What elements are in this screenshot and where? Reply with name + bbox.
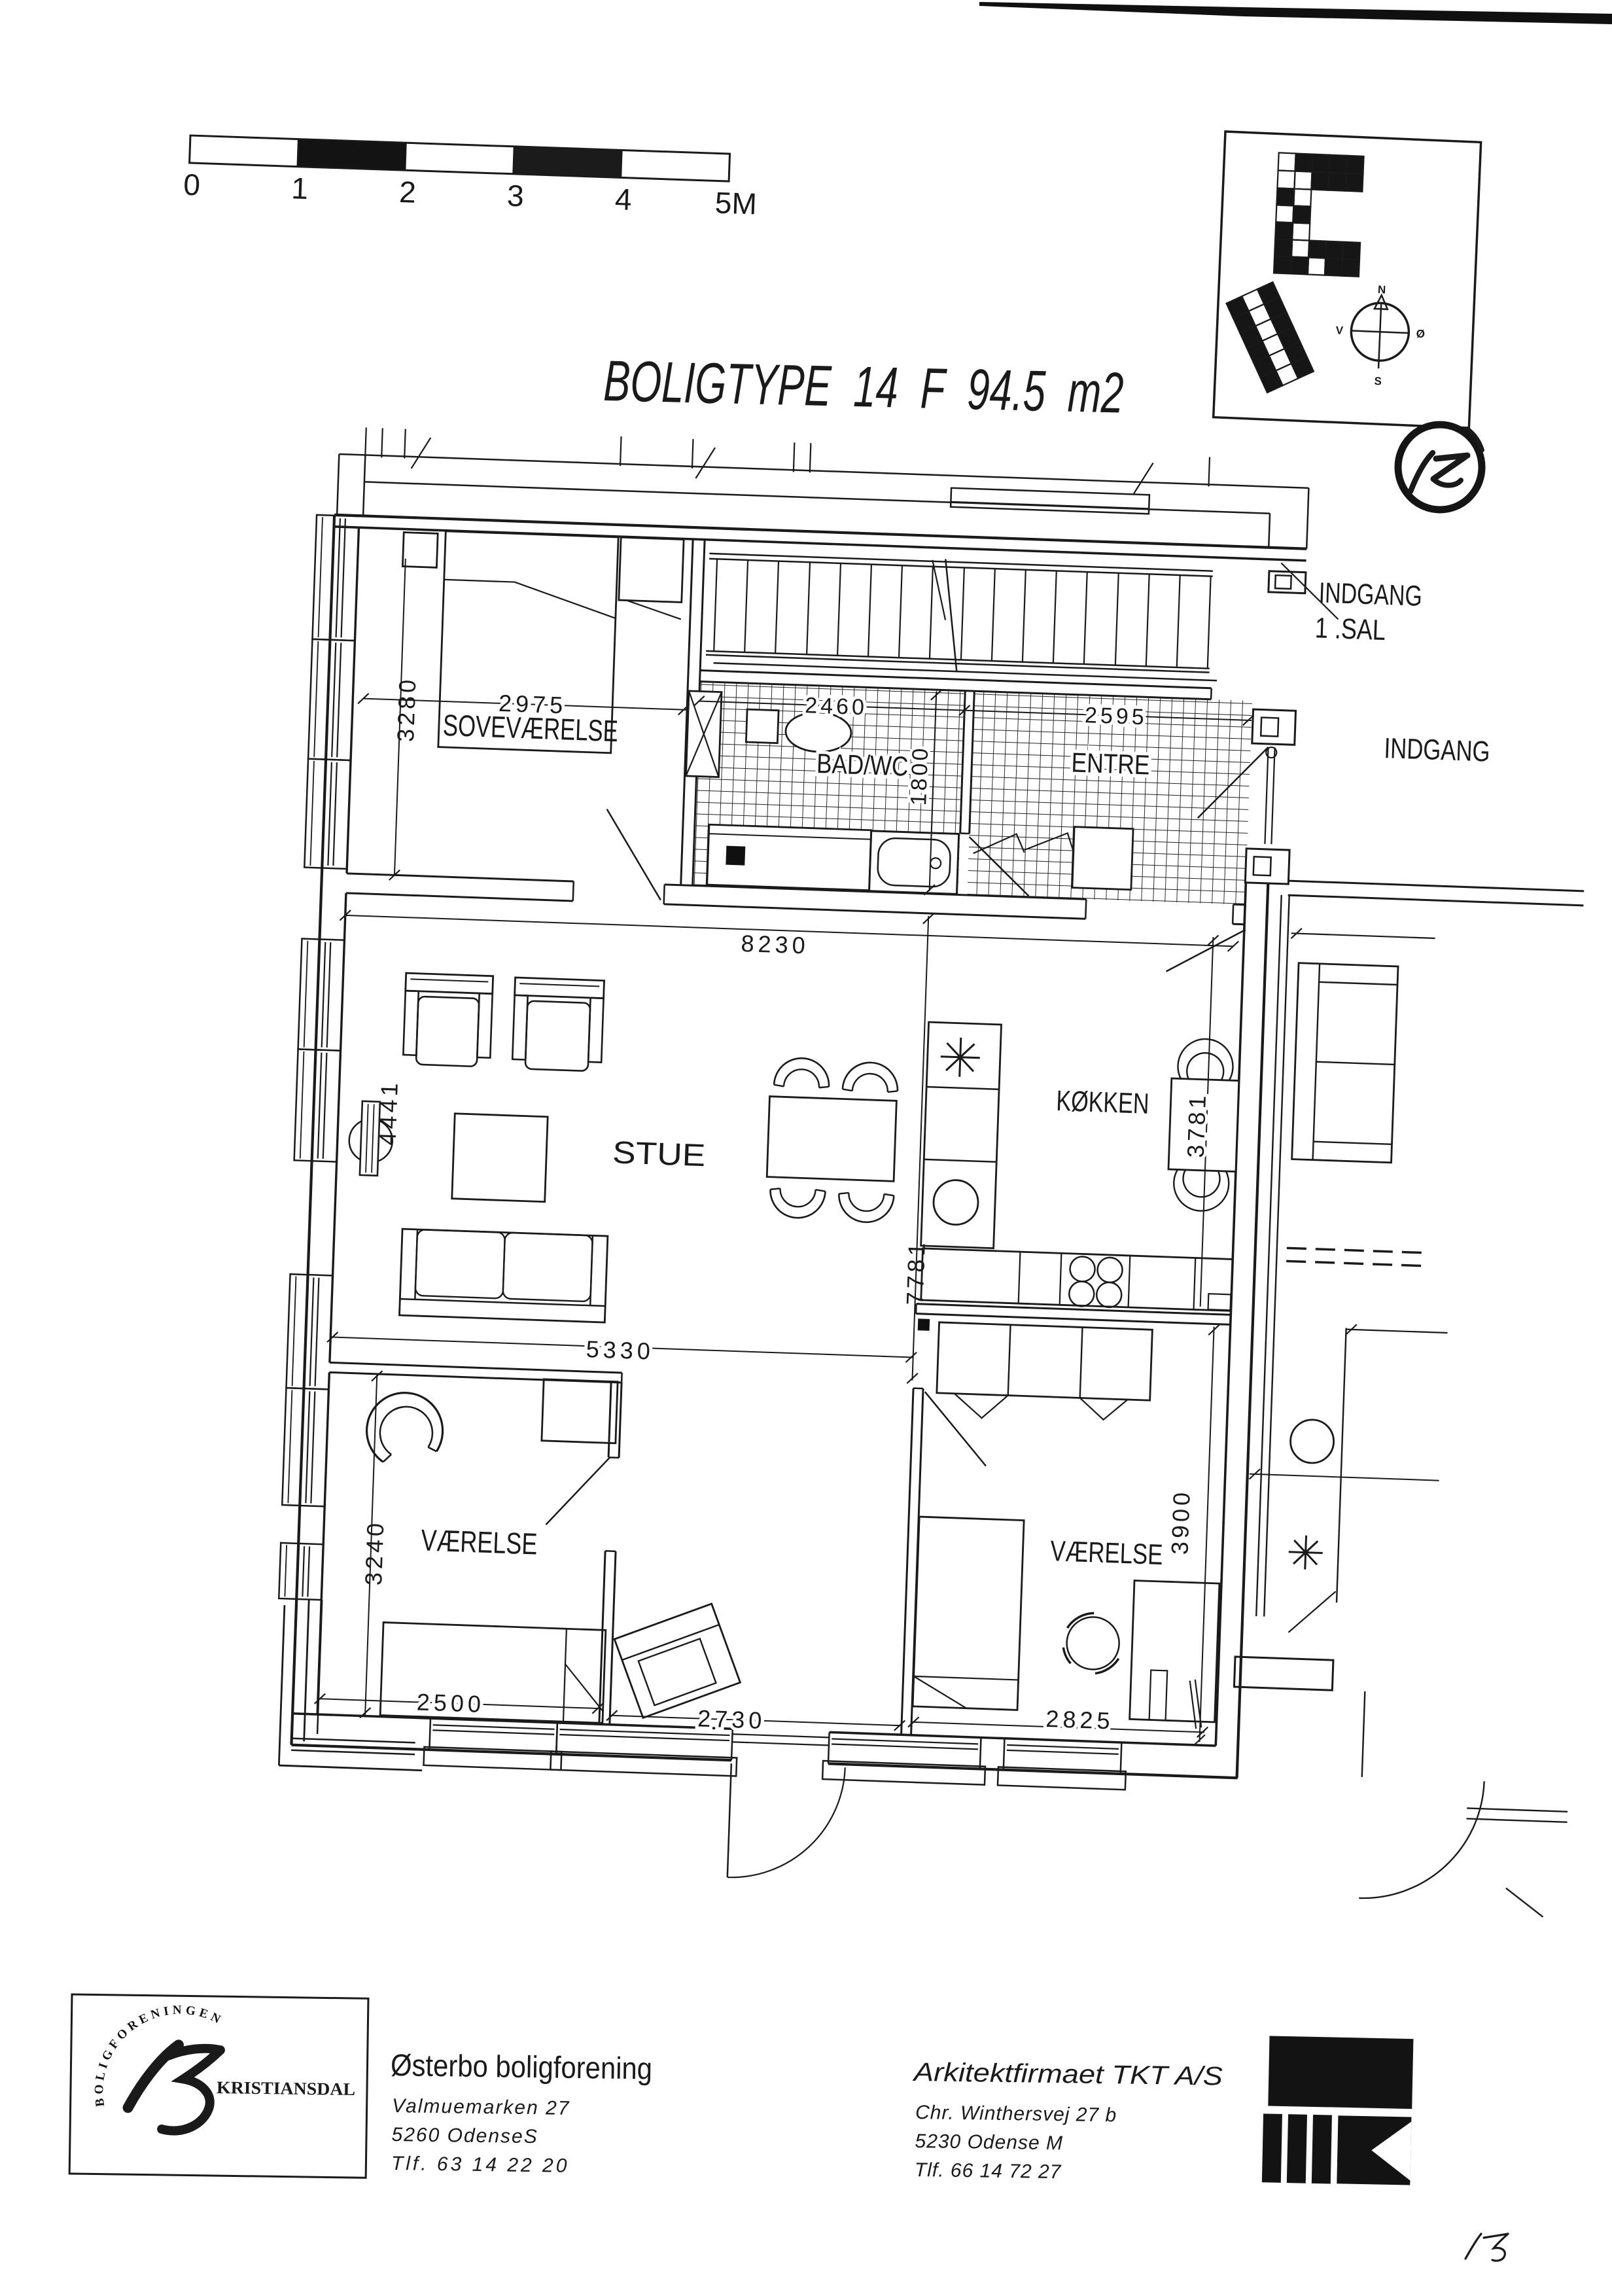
svg-text:5330: 5330 (586, 1335, 654, 1365)
svg-text:1: 1 (290, 171, 308, 205)
svg-text:5M: 5M (714, 185, 758, 221)
svg-text:Østerbo boligforening: Østerbo boligforening (391, 2047, 653, 2086)
svg-text:0: 0 (183, 168, 201, 202)
svg-text:INDGANG: INDGANG (1318, 576, 1423, 612)
svg-text:5230 Odense M: 5230 Odense M (915, 2130, 1063, 2154)
svg-text:2: 2 (398, 175, 416, 209)
svg-text:2825: 2825 (1045, 1705, 1114, 1735)
svg-text:3: 3 (506, 179, 524, 213)
svg-text:S: S (1374, 375, 1382, 387)
svg-text:3900: 3900 (1166, 1489, 1195, 1555)
svg-text:Arkitektfirmaet TKT A/S: Arkitektfirmaet TKT A/S (912, 2058, 1223, 2091)
svg-text:BOLIGTYPE 14 F 94.5 m2: BOLIGTYPE 14 F 94.5 m2 (603, 348, 1124, 425)
svg-text:7781: 7781 (902, 1239, 930, 1305)
svg-text:2975: 2975 (499, 690, 567, 719)
svg-text:Tlf. 66 14 72 27: Tlf. 66 14 72 27 (915, 2159, 1062, 2183)
svg-text:INDGANG: INDGANG (1384, 732, 1491, 768)
svg-text:5260 OdenseS: 5260 OdenseS (391, 2124, 538, 2147)
svg-text:8230: 8230 (741, 930, 809, 959)
svg-text:BAD/WC: BAD/WC (816, 748, 909, 782)
svg-text:Chr. Winthersvej 27 b: Chr. Winthersvej 27 b (915, 2102, 1117, 2126)
svg-text:3781: 3781 (1182, 1092, 1211, 1158)
svg-text:2460: 2460 (805, 693, 868, 720)
svg-text:VÆRELSE: VÆRELSE (1050, 1535, 1164, 1571)
svg-text:V: V (1335, 324, 1344, 336)
svg-text:Ø: Ø (1416, 327, 1425, 340)
svg-text:2500: 2500 (416, 1688, 485, 1718)
svg-text:N: N (1378, 283, 1386, 296)
svg-text:VÆRELSE: VÆRELSE (421, 1523, 538, 1561)
svg-text:3240: 3240 (360, 1519, 389, 1585)
svg-text:KØKKEN: KØKKEN (1056, 1085, 1150, 1120)
svg-text:4: 4 (614, 182, 632, 217)
svg-text:STUE: STUE (612, 1135, 706, 1173)
svg-text:1 .SAL: 1 .SAL (1314, 612, 1386, 646)
svg-text:ENTRE: ENTRE (1071, 747, 1151, 780)
svg-text:Tlf. 63 14 22 20: Tlf. 63 14 22 20 (391, 2153, 570, 2177)
svg-text:2730: 2730 (697, 1704, 766, 1734)
svg-text:1800: 1800 (906, 745, 933, 806)
svg-text:4441: 4441 (374, 1080, 403, 1146)
svg-text:3280: 3280 (392, 676, 421, 742)
svg-text:Valmuemarken 27: Valmuemarken 27 (392, 2095, 570, 2119)
svg-text:2595: 2595 (1084, 703, 1148, 730)
svg-text:KRISTIANSDAL: KRISTIANSDAL (217, 2077, 355, 2099)
